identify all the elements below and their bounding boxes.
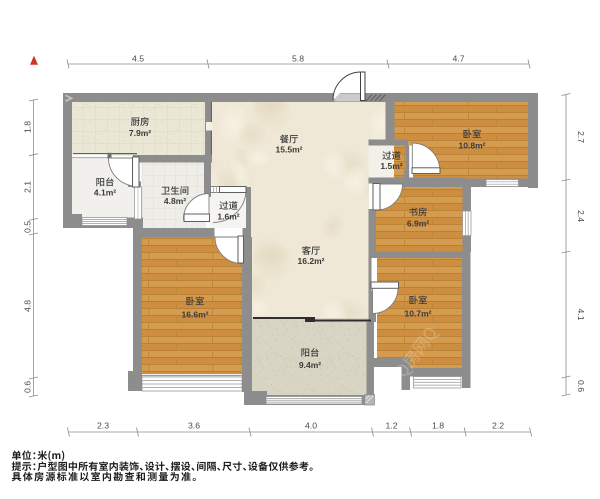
svg-text:1.6m²: 1.6m² xyxy=(217,211,239,221)
svg-text:6.9m²: 6.9m² xyxy=(407,218,429,228)
svg-text:9.4m²: 9.4m² xyxy=(299,360,321,370)
svg-text:2.3: 2.3 xyxy=(97,421,109,431)
svg-text:4.0: 4.0 xyxy=(305,421,317,431)
svg-text:4.5: 4.5 xyxy=(132,53,144,63)
svg-text:15.5m²: 15.5m² xyxy=(276,144,303,154)
svg-text:5.8: 5.8 xyxy=(292,53,304,63)
svg-text:2.7: 2.7 xyxy=(576,131,586,143)
svg-text:7.9m²: 7.9m² xyxy=(129,128,151,138)
svg-text:16.6m²: 16.6m² xyxy=(182,309,209,319)
svg-text:0.6: 0.6 xyxy=(23,381,33,393)
svg-text:2.2: 2.2 xyxy=(492,421,504,431)
svg-text:3.6: 3.6 xyxy=(188,421,200,431)
svg-text:10.8m²: 10.8m² xyxy=(459,140,486,150)
svg-text:1.8: 1.8 xyxy=(432,421,444,431)
svg-text:4.8: 4.8 xyxy=(23,300,33,312)
svg-text:0.6: 0.6 xyxy=(576,380,586,392)
svg-text:1.2: 1.2 xyxy=(385,421,397,431)
svg-text:4.1m²: 4.1m² xyxy=(94,187,116,197)
svg-text:10.7m²: 10.7m² xyxy=(405,308,432,318)
svg-text:16.2m²: 16.2m² xyxy=(298,256,325,266)
svg-text:4.7: 4.7 xyxy=(452,53,464,63)
svg-text:2.4: 2.4 xyxy=(576,210,586,222)
svg-text:4.8m²: 4.8m² xyxy=(164,196,186,206)
svg-text:4.1: 4.1 xyxy=(576,308,586,320)
svg-text:1.5m²: 1.5m² xyxy=(380,161,402,171)
svg-text:2.1: 2.1 xyxy=(23,181,33,193)
svg-text:1.8: 1.8 xyxy=(23,121,33,133)
svg-text:0.5: 0.5 xyxy=(23,221,33,233)
